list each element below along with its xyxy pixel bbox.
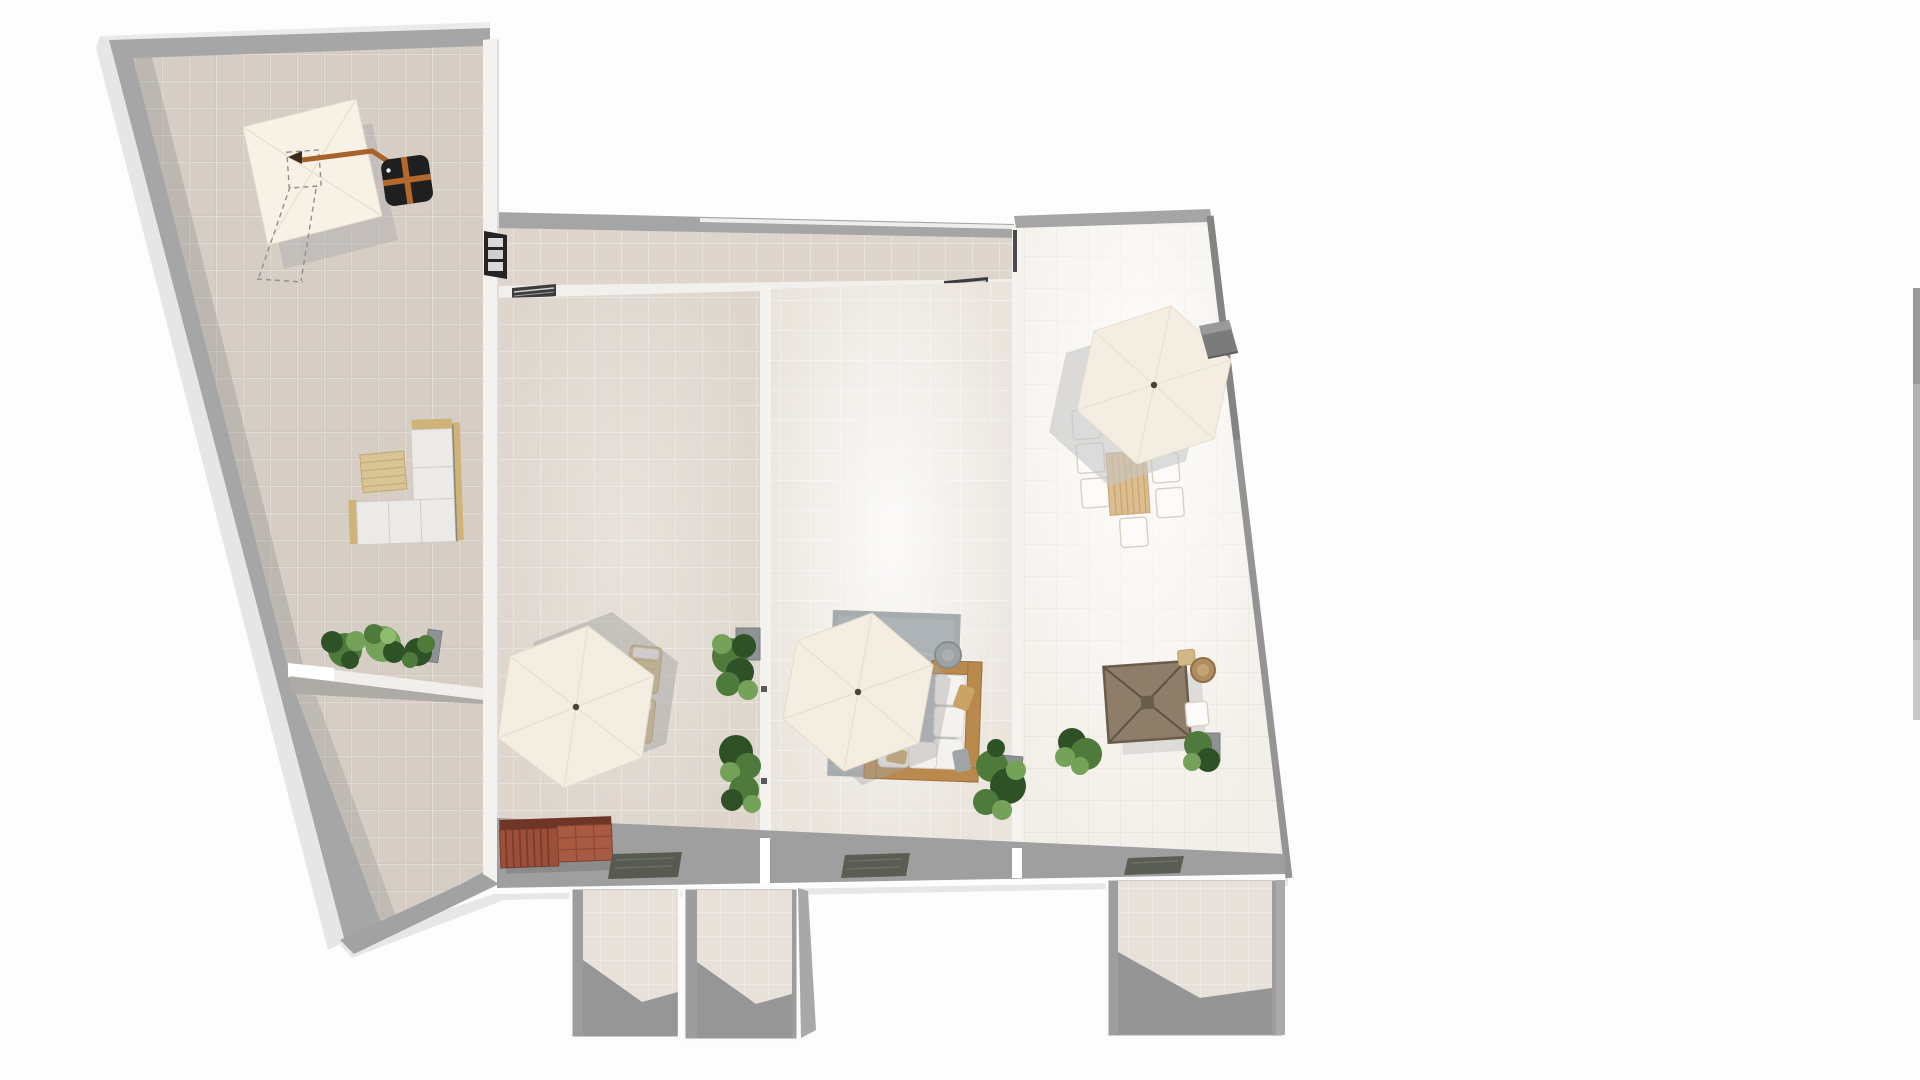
doormat-2[interactable] — [841, 853, 910, 878]
room-b-outer-face — [798, 888, 816, 1038]
door-hinge-mark — [761, 686, 767, 692]
band-door-gap-2 — [1012, 848, 1022, 878]
edge-wall-fragment — [1913, 288, 1920, 720]
floorplan-viewport[interactable] — [0, 0, 1920, 1080]
pouf[interactable] — [935, 642, 961, 668]
bottom-room-a[interactable] — [571, 888, 679, 1038]
wall-divider-2-3[interactable] — [760, 285, 771, 843]
rattan-table[interactable] — [1191, 658, 1215, 682]
band-door-gap-1 — [760, 838, 770, 890]
divider-dark-jamb — [1013, 230, 1017, 272]
doormat-1[interactable] — [608, 852, 682, 879]
bottom-room-b[interactable] — [684, 888, 816, 1040]
umbrella-3-pole — [1151, 382, 1157, 388]
umbrella-2-pole — [855, 689, 861, 695]
bottom-room-c[interactable] — [1107, 879, 1285, 1037]
umbrella-1-pole — [573, 704, 579, 710]
plant-column-upper — [712, 634, 758, 700]
door-hinge-mark-2 — [761, 778, 767, 784]
floorplan-canvas[interactable] — [0, 0, 1920, 1080]
window-3pane[interactable] — [484, 231, 507, 279]
corridor-floor[interactable] — [497, 228, 1012, 288]
red-bench[interactable] — [499, 816, 619, 874]
room-terrace-4[interactable] — [1014, 209, 1289, 878]
umbrella-base[interactable] — [380, 154, 434, 207]
tan-ottoman[interactable] — [360, 451, 407, 493]
doormat-3[interactable] — [1124, 856, 1184, 875]
room-c-right-face — [1276, 880, 1285, 1035]
white-chair-gazebo[interactable] — [1185, 701, 1209, 727]
